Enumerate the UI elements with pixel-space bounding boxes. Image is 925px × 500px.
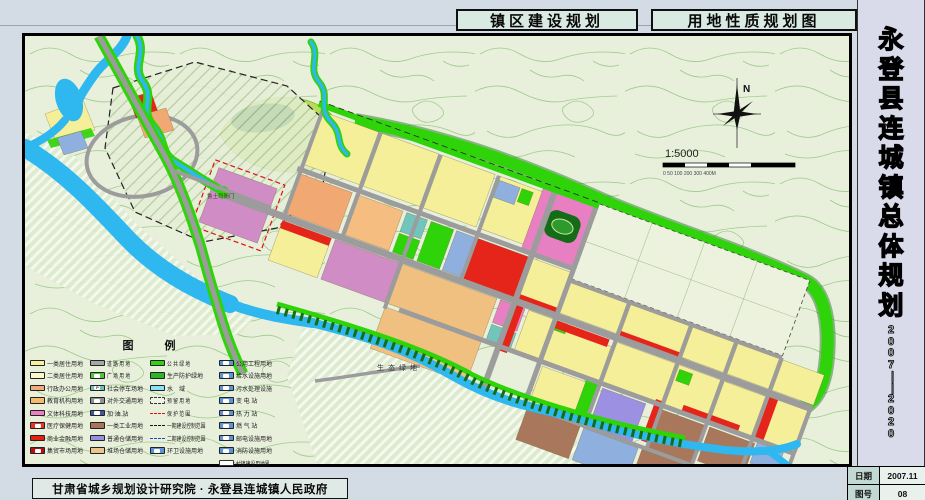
- legend-label: 热 力 站: [236, 409, 257, 418]
- plan-title-char: 登: [878, 56, 903, 86]
- legend-swatch-dot-icon: [223, 386, 229, 390]
- legend-item: 环卫设施用地: [150, 446, 215, 456]
- legend-column: 公 共 绿 地生产防护绿地水 域预 留 用 地保 护 范 围一期建设控制范围二期…: [150, 358, 215, 468]
- legend-swatch: [219, 372, 234, 379]
- plan-period-char: 0: [888, 429, 894, 441]
- legend-item: 公 共 绿 地: [150, 358, 215, 368]
- legend-swatch: [90, 447, 105, 454]
- legend-swatch: [150, 447, 165, 454]
- legend-item: 医疗保健用地: [30, 421, 86, 431]
- legend: 图 例 一类居住用地二类居住用地行政办公用地教育机构用地文体科技用地医疗保健用地…: [30, 337, 278, 468]
- date-value: 2007.11: [880, 467, 925, 484]
- legend-label: 社会停车场地: [107, 384, 143, 393]
- legend-swatch-dot-icon: [223, 436, 229, 440]
- legend-swatch-dot-icon: [223, 424, 229, 428]
- legend-item: 行政办公用地: [30, 383, 86, 393]
- legend-label: 给水设施用地: [236, 371, 272, 380]
- legend-line-sample: [150, 438, 165, 439]
- legend-swatch-dot-icon: [223, 411, 229, 415]
- legend-swatch-dot-icon: [223, 374, 229, 378]
- plan-period-char: —: [885, 383, 897, 394]
- legend-swatch: [150, 397, 165, 404]
- plan-title-char: 县: [878, 85, 903, 115]
- plan-period-char: 2: [888, 325, 894, 337]
- legend-label: 教育机构用地: [47, 396, 83, 405]
- legend-swatch: P: [90, 385, 105, 392]
- title-sidebar: 永登县连城镇总体规划 2007——2020: [857, 0, 925, 467]
- legend-label: 环卫设施用地: [167, 446, 203, 455]
- legend-swatch: [30, 435, 45, 442]
- plan-title-char: 城: [878, 144, 903, 174]
- credit-bar: 甘肃省城乡规划设计研究院 · 永登县连城镇人民政府: [32, 478, 348, 499]
- legend-swatch: [219, 435, 234, 442]
- legend-item: 加 油 站: [90, 408, 146, 418]
- legend-item: 污水处理设施: [219, 383, 278, 393]
- title-box-landuse-plan: 用地性质规划图: [651, 9, 857, 31]
- legend-swatch-bolt-icon: [223, 399, 229, 403]
- legend-swatch: [30, 422, 45, 429]
- legend-item: 村镇建设用地界: [219, 458, 278, 468]
- plan-period-char: —: [885, 371, 897, 382]
- plan-sheet: 镇区建设规划 用地性质规划图: [0, 0, 925, 500]
- eco-green-label: 生态绿地: [377, 363, 421, 372]
- legend-item: P社会停车场地: [90, 383, 146, 393]
- legend-swatch-dot-icon: [94, 374, 100, 378]
- legend-item: 保 护 范 围: [150, 408, 215, 418]
- legend-label: 加 油 站: [107, 409, 128, 418]
- legend-swatch: [90, 422, 105, 429]
- legend-label: 生产防护绿地: [167, 371, 203, 380]
- scale-bar-numbers: 0 50 100 200 300 400M: [663, 171, 716, 177]
- legend-item: 一类居住用地: [30, 358, 86, 368]
- legend-label: 公 共 绿 地: [167, 359, 190, 368]
- legend-swatch: [30, 410, 45, 417]
- sheet-info-table: 日期 2007.11 图号 08: [847, 466, 925, 500]
- plan-title-char: 总: [878, 203, 903, 233]
- legend-item: 堆场仓储用地: [90, 446, 146, 456]
- title-box-construction-plan: 镇区建设规划: [456, 9, 638, 31]
- legend-swatch-dot-icon: [223, 361, 229, 365]
- legend-label: 一类居住用地: [47, 359, 83, 368]
- legend-swatch-dot-icon: [94, 399, 100, 403]
- legend-item: 公用工程用地: [219, 358, 278, 368]
- legend-swatch: [150, 360, 165, 367]
- legend-swatch-dot-icon: [154, 449, 160, 453]
- legend-title: 图 例: [30, 337, 278, 353]
- legend-item: 二类居住用地: [30, 371, 86, 381]
- legend-swatch: [219, 447, 234, 454]
- legend-swatch: [90, 435, 105, 442]
- legend-swatch: [219, 385, 234, 392]
- legend-label: 二类居住用地: [47, 371, 83, 380]
- legend-swatch: [219, 397, 234, 404]
- legend-item: 普通仓储用地: [90, 433, 146, 443]
- legend-label: 公用工程用地: [236, 359, 272, 368]
- legend-line-sample: [150, 413, 165, 414]
- legend-label: 对外交通用地: [107, 396, 143, 405]
- legend-item: 给水设施用地: [219, 371, 278, 381]
- legend-item: 文体科技用地: [30, 408, 86, 418]
- legend-item: 商业金融用地: [30, 433, 86, 443]
- plan-title-char: 规: [878, 262, 903, 292]
- legend-swatch: [30, 447, 45, 454]
- legend-label: 水 域: [167, 384, 185, 393]
- plan-period-char: 2: [888, 394, 894, 406]
- legend-item: 对外交通用地: [90, 396, 146, 406]
- legend-swatch: [90, 410, 105, 417]
- legend-item: 变 电 站: [219, 396, 278, 406]
- legend-column: 公用工程用地给水设施用地污水处理设施变 电 站热 力 站燃 气 站邮电设施用地消…: [219, 358, 278, 468]
- legend-label: 二期建设控制范围: [167, 434, 205, 443]
- legend-label: 商业金融用地: [47, 434, 83, 443]
- legend-swatch: [219, 360, 234, 367]
- legend-swatch-P-icon: P: [94, 386, 100, 390]
- legend-label: 污水处理设施: [236, 384, 272, 393]
- legend-item: 教育机构用地: [30, 396, 86, 406]
- legend-label: 医疗保健用地: [47, 421, 83, 430]
- legend-swatch: [150, 385, 165, 392]
- legend-item: 燃 气 站: [219, 421, 278, 431]
- legend-label: 堆场仓储用地: [107, 446, 143, 455]
- legend-swatch-cross-icon: [35, 424, 41, 428]
- plan-title-char: 体: [878, 233, 903, 263]
- legend-swatch: [90, 372, 105, 379]
- legend-label: 消防设施用地: [236, 446, 272, 455]
- legend-item: 一类工业用地: [90, 421, 146, 431]
- legend-item: 广 场 用 地: [90, 371, 146, 381]
- legend-swatch: [150, 372, 165, 379]
- plan-period-char: 2: [888, 417, 894, 429]
- heritage-label: 鲁土司衙门: [207, 192, 235, 200]
- plan-title-char: 划: [878, 292, 903, 322]
- legend-swatch: [90, 397, 105, 404]
- date-label: 日期: [848, 467, 879, 484]
- legend-label: 变 电 站: [236, 396, 257, 405]
- legend-label: 广 场 用 地: [107, 371, 130, 380]
- legend-swatch: [90, 360, 105, 367]
- legend-item: 水 域: [150, 383, 215, 393]
- legend-item: 生产防护绿地: [150, 371, 215, 381]
- legend-label: 文体科技用地: [47, 409, 83, 418]
- legend-item: 邮电设施用地: [219, 433, 278, 443]
- legend-label: 一类工业用地: [107, 421, 143, 430]
- legend-label: 邮电设施用地: [236, 434, 272, 443]
- legend-column: 一类居住用地二类居住用地行政办公用地教育机构用地文体科技用地医疗保健用地商业金融…: [30, 358, 86, 468]
- legend-label: 道 路 用 地: [107, 359, 130, 368]
- plan-period-char: 0: [888, 348, 894, 360]
- legend-swatch: [219, 460, 234, 467]
- plan-title-char: 镇: [878, 174, 903, 204]
- legend-column: 道 路 用 地广 场 用 地P社会停车场地对外交通用地加 油 站一类工业用地普通…: [90, 358, 146, 468]
- legend-label: 村镇建设用地界: [236, 459, 270, 468]
- plan-title-char: 永: [878, 26, 903, 56]
- legend-label: 一期建设控制范围: [167, 421, 205, 430]
- legend-swatch: [30, 385, 45, 392]
- legend-label: 燃 气 站: [236, 421, 257, 430]
- legend-label: 预 留 用 地: [167, 396, 190, 405]
- north-label: N: [743, 84, 750, 95]
- legend-swatch-dot-icon: [223, 449, 229, 453]
- plan-period-char: 7: [888, 360, 894, 372]
- legend-swatch: [30, 397, 45, 404]
- legend-swatch: [219, 410, 234, 417]
- sheet-number-value: 08: [880, 485, 925, 500]
- legend-label: 行政办公用地: [47, 384, 83, 393]
- plan-title-char: 连: [878, 115, 903, 145]
- scale-ratio: 1:5000: [665, 148, 699, 160]
- legend-columns: 一类居住用地二类居住用地行政办公用地教育机构用地文体科技用地医疗保健用地商业金融…: [30, 358, 278, 468]
- plan-period-vertical: 2007——2020: [858, 325, 924, 440]
- legend-swatch: [219, 422, 234, 429]
- legend-item: 道 路 用 地: [90, 358, 146, 368]
- legend-swatch-dot-icon: [35, 449, 41, 453]
- legend-item: 集贸市场用地: [30, 446, 86, 456]
- plan-title-vertical: 永登县连城镇总体规划: [858, 26, 924, 321]
- legend-swatch-dot-icon: [94, 411, 100, 415]
- sheet-number-label: 图号: [848, 485, 879, 500]
- legend-item: 热 力 站: [219, 408, 278, 418]
- legend-item: 二期建设控制范围: [150, 433, 215, 443]
- legend-swatch: [30, 360, 45, 367]
- legend-line-sample: [150, 425, 165, 426]
- legend-label: 保 护 范 围: [167, 409, 190, 418]
- legend-item: 消防设施用地: [219, 446, 278, 456]
- legend-item: 预 留 用 地: [150, 396, 215, 406]
- legend-item: 一期建设控制范围: [150, 421, 215, 431]
- legend-label: 集贸市场用地: [47, 446, 83, 455]
- legend-label: 普通仓储用地: [107, 434, 143, 443]
- legend-swatch: [30, 372, 45, 379]
